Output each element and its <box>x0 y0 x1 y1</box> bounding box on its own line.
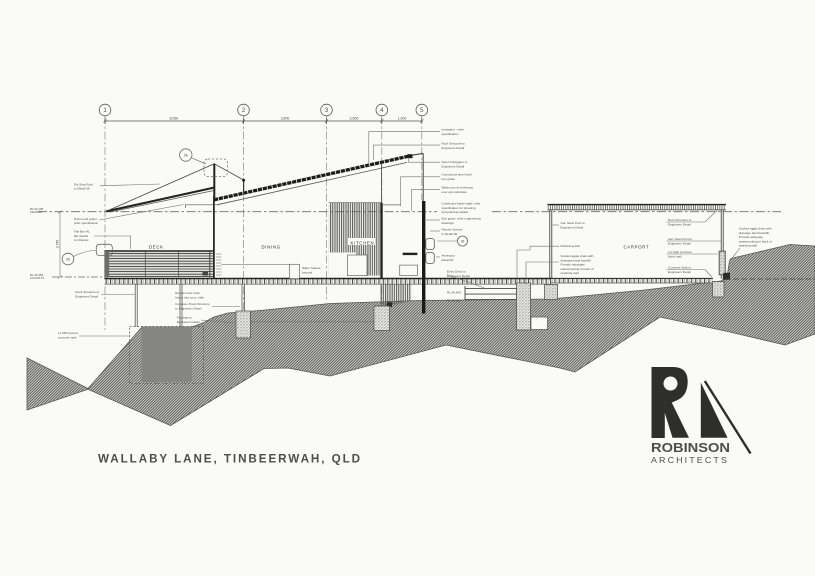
svg-text:8,060: 8,060 <box>170 117 179 121</box>
svg-text:WALLABY LANE, TINBEERWAH, QLD: WALLABY LANE, TINBEERWAH, QLD <box>98 452 362 466</box>
svg-text:and painting details: and painting details <box>442 210 469 214</box>
svg-text:3: 3 <box>325 108 329 114</box>
svg-text:specification: specification <box>442 132 459 136</box>
svg-text:drawings: drawings <box>442 221 455 225</box>
svg-text:FLOOR PL: FLOOR PL <box>30 276 45 280</box>
svg-text:3,600: 3,600 <box>281 117 290 121</box>
svg-text:to Chassis: to Chassis <box>74 238 89 242</box>
svg-text:retaining wall: retaining wall <box>739 244 757 248</box>
svg-text:RL 90,450: RL 90,450 <box>447 291 461 295</box>
svg-text:Engineers Detail: Engineers Detail <box>668 241 691 245</box>
svg-text:2: 2 <box>242 108 246 114</box>
svg-text:1,900: 1,900 <box>398 117 407 121</box>
svg-text:Engineers Detail: Engineers Detail <box>177 320 200 324</box>
svg-text:KITCHEN: KITCHEN <box>351 240 375 245</box>
svg-text:CARPORT: CARPORT <box>624 244 650 249</box>
svg-text:ROBINSON: ROBINSON <box>651 440 730 455</box>
svg-text:06: 06 <box>184 154 188 158</box>
svg-text:Retaining wall: Retaining wall <box>561 244 581 248</box>
svg-text:retaining wall: retaining wall <box>561 271 579 275</box>
svg-text:Engineers Detail: Engineers Detail <box>75 294 98 298</box>
svg-text:2,745: 2,745 <box>56 240 60 249</box>
svg-text:CEILING: CEILING <box>30 210 42 214</box>
svg-text:RL 90,350: RL 90,350 <box>447 299 461 303</box>
svg-text:5: 5 <box>420 108 424 114</box>
svg-text:DINING: DINING <box>262 244 281 249</box>
svg-text:to Detail 06: to Detail 06 <box>74 187 90 191</box>
svg-text:06: 06 <box>461 240 465 244</box>
svg-text:2,500: 2,500 <box>350 117 359 121</box>
svg-text:ARCHITECTS: ARCHITECTS <box>651 455 729 465</box>
svg-text:beyond: beyond <box>302 270 312 274</box>
svg-text:Engineers Detail: Engineers Detail <box>442 164 465 168</box>
svg-text:frame into conc. slab: frame into conc. slab <box>175 295 204 299</box>
svg-text:box gutter: box gutter <box>442 177 456 181</box>
svg-text:Engineers Detail: Engineers Detail <box>561 225 584 229</box>
svg-text:block wall: block wall <box>668 254 682 258</box>
svg-text:over eps substrate: over eps substrate <box>442 190 468 194</box>
svg-text:Engineers Detail: Engineers Detail <box>668 222 691 226</box>
svg-text:08: 08 <box>66 258 70 262</box>
svg-text:Engineers Detail: Engineers Detail <box>442 146 465 150</box>
svg-text:Engineers Detail: Engineers Detail <box>668 270 691 274</box>
svg-text:to Detail 06: to Detail 06 <box>442 232 458 236</box>
svg-text:DECK: DECK <box>149 244 164 249</box>
svg-text:to Engineers Detail: to Engineers Detail <box>175 306 201 310</box>
svg-text:1: 1 <box>103 108 107 114</box>
svg-text:refer specification: refer specification <box>74 221 99 225</box>
svg-text:concrete tank: concrete tank <box>58 335 77 339</box>
svg-text:4: 4 <box>380 108 384 114</box>
svg-text:Detail 01: Detail 01 <box>442 258 454 262</box>
